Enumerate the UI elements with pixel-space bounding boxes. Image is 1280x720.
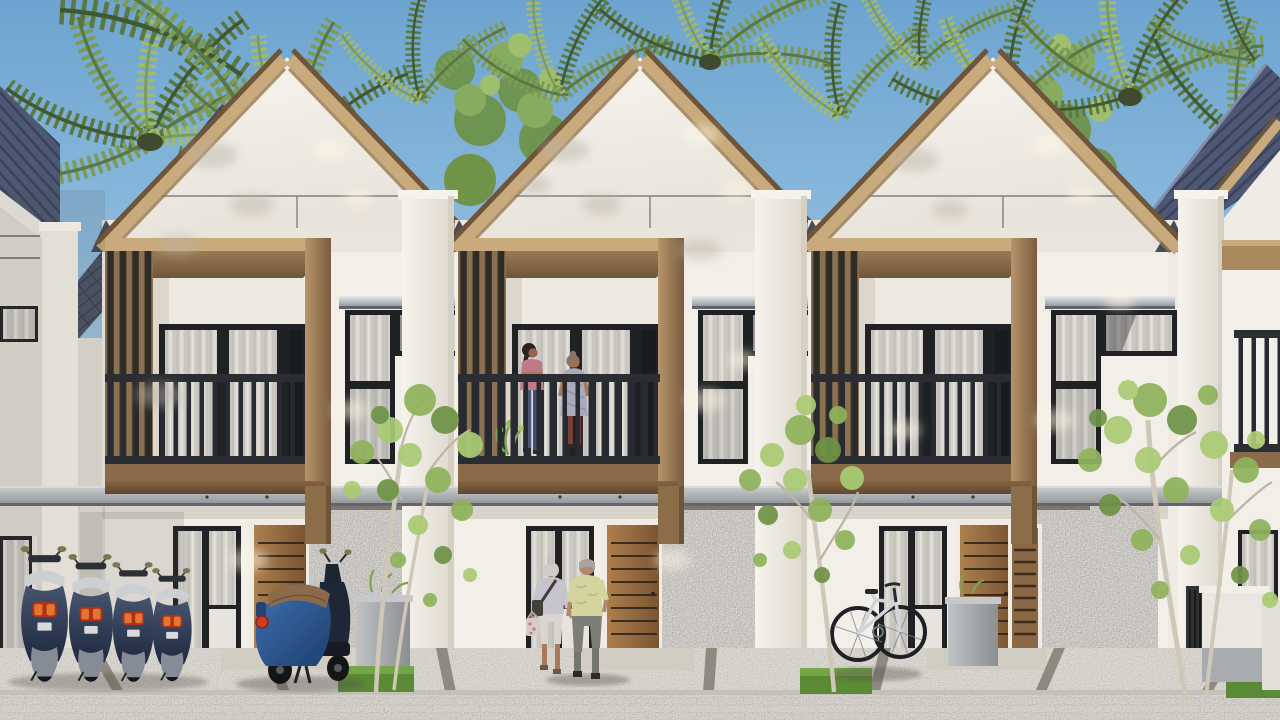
paved-road [0,695,1280,720]
architectural-render: Daytime 3D architectural rendering of a … [0,0,1280,720]
render-canvas: architectural-exterior-render [0,0,1280,720]
tote-bag [526,618,539,636]
head [528,348,537,357]
curb [0,690,1280,695]
head [571,359,580,368]
stone-accent-wall [1090,506,1158,664]
body [256,595,331,666]
balcony-railing-fragment [1234,338,1280,446]
saddle [865,589,878,594]
